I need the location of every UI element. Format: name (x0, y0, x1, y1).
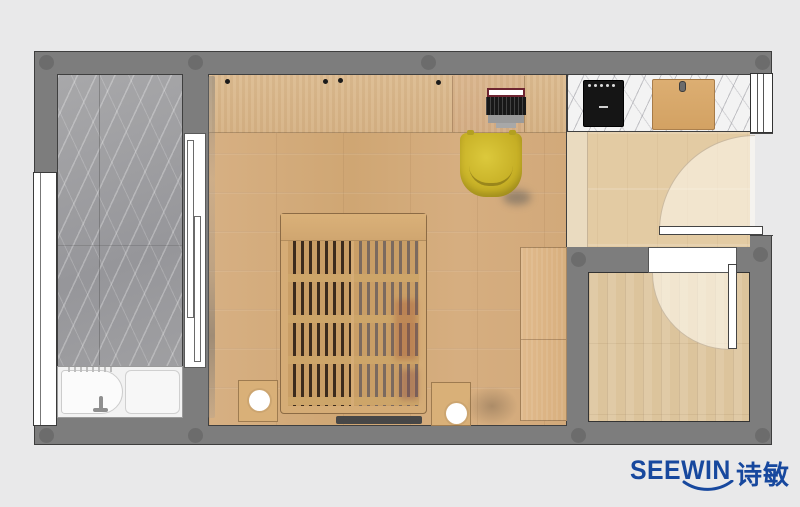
floor-plan-canvas: SEEWIN 诗敏 (0, 0, 800, 507)
small-room-door-leaf (728, 264, 737, 349)
window-left (33, 172, 57, 426)
cooktop-knob (594, 84, 597, 87)
chair-arm-nub (509, 130, 516, 135)
laptop-deck (488, 115, 524, 123)
bed-slat-tint (395, 300, 417, 360)
laptop-screen (487, 88, 525, 97)
knob-dot (338, 78, 343, 83)
sliding-door-panel (194, 216, 201, 362)
wardrobe (520, 247, 567, 421)
lamp-right (446, 403, 467, 424)
floor-shadow (466, 386, 518, 426)
induction-cooktop (583, 80, 624, 127)
bed-slats-left (288, 241, 351, 406)
tub-basin (125, 370, 180, 414)
window-right (750, 73, 773, 133)
wall-column-marker (39, 428, 54, 443)
laptop-keyboard (486, 97, 526, 115)
sliding-door-panel (187, 140, 194, 318)
brand-logo: SEEWIN 诗敏 (630, 453, 795, 493)
window-right-mullion (763, 74, 764, 132)
entry-door-leaf (659, 226, 763, 235)
cooktop-knob (606, 84, 609, 87)
marble-seam (99, 75, 100, 365)
bed-foot-bar (336, 416, 422, 424)
cooktop-knob (612, 84, 615, 87)
cooktop-knob (600, 84, 603, 87)
wardrobe-seam (521, 339, 566, 340)
knob-dot (225, 79, 230, 84)
lamp-left (249, 390, 270, 411)
small-room-doorway (648, 247, 737, 273)
curtain-shadow (208, 76, 215, 418)
bed-headboard (281, 214, 426, 241)
wall-column-marker (421, 55, 436, 70)
bed-slat-tint (400, 370, 418, 400)
brand-logo-chinese: 诗敏 (736, 455, 790, 492)
shower-tray (61, 370, 123, 414)
laptop-trackpad (496, 123, 516, 128)
wall-column-marker (753, 247, 768, 262)
wall-column-marker (188, 428, 203, 443)
window-left-mullion (40, 173, 41, 425)
logo-swoosh-icon (682, 480, 734, 492)
wall-column-marker (188, 55, 203, 70)
tub-deck-grill (68, 367, 114, 372)
wall-column-marker (571, 252, 586, 267)
faucet-icon (93, 408, 108, 412)
wall-column-marker (755, 428, 770, 443)
knob-dot (436, 80, 441, 85)
chair-arm-nub (467, 130, 474, 135)
knob-dot (323, 79, 328, 84)
floor-transition-strip (567, 132, 588, 247)
cooktop-display (599, 106, 608, 108)
marble-seam (58, 245, 182, 246)
window-right-mullion (757, 74, 758, 132)
cooktop-knob (588, 84, 591, 87)
wall-column-marker (755, 55, 770, 70)
cutting-board-handle (679, 81, 686, 92)
wall-column-marker (39, 55, 54, 70)
wall-column-marker (571, 428, 586, 443)
